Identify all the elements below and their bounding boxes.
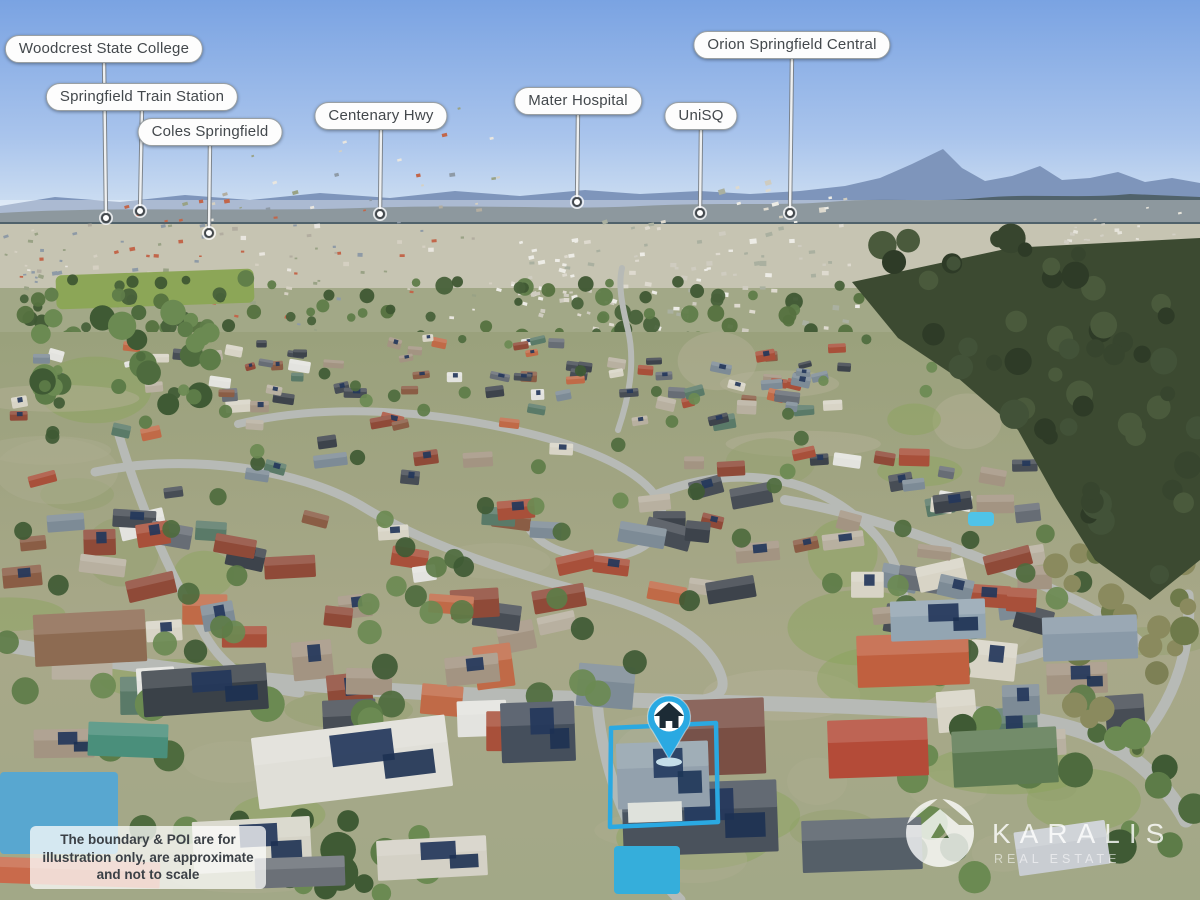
poi-leader-orion-springfield-central [784, 55, 796, 219]
poi-target-dot [102, 214, 110, 222]
poi-leader-coles-springfield [203, 142, 215, 239]
annotated-aerial-photo: Woodcrest State CollegeSpringfield Train… [0, 0, 1200, 900]
poi-target-dot [696, 209, 704, 217]
annotation-overlay-layer [0, 0, 1200, 900]
poi-leader-springfield-train-station [134, 107, 146, 217]
poi-target-dot [573, 198, 581, 206]
poi-leader-woodcrest-state-college [100, 59, 112, 224]
poi-target-dot [376, 210, 384, 218]
poi-leader-mater-hospital [571, 111, 583, 208]
poi-leader-line-core [209, 142, 210, 233]
poi-target-dot [205, 229, 213, 237]
poi-target-dot [136, 207, 144, 215]
poi-leader-line-core [380, 126, 381, 214]
poi-leader-line-core [577, 111, 578, 202]
poi-leader-line-core [700, 126, 701, 213]
poi-target-dot [786, 209, 794, 217]
poi-leader-centenary-hwy [374, 126, 386, 220]
poi-leader-unisq [694, 126, 706, 219]
disclaimer-note: The boundary & POI are for illustration … [30, 826, 266, 889]
